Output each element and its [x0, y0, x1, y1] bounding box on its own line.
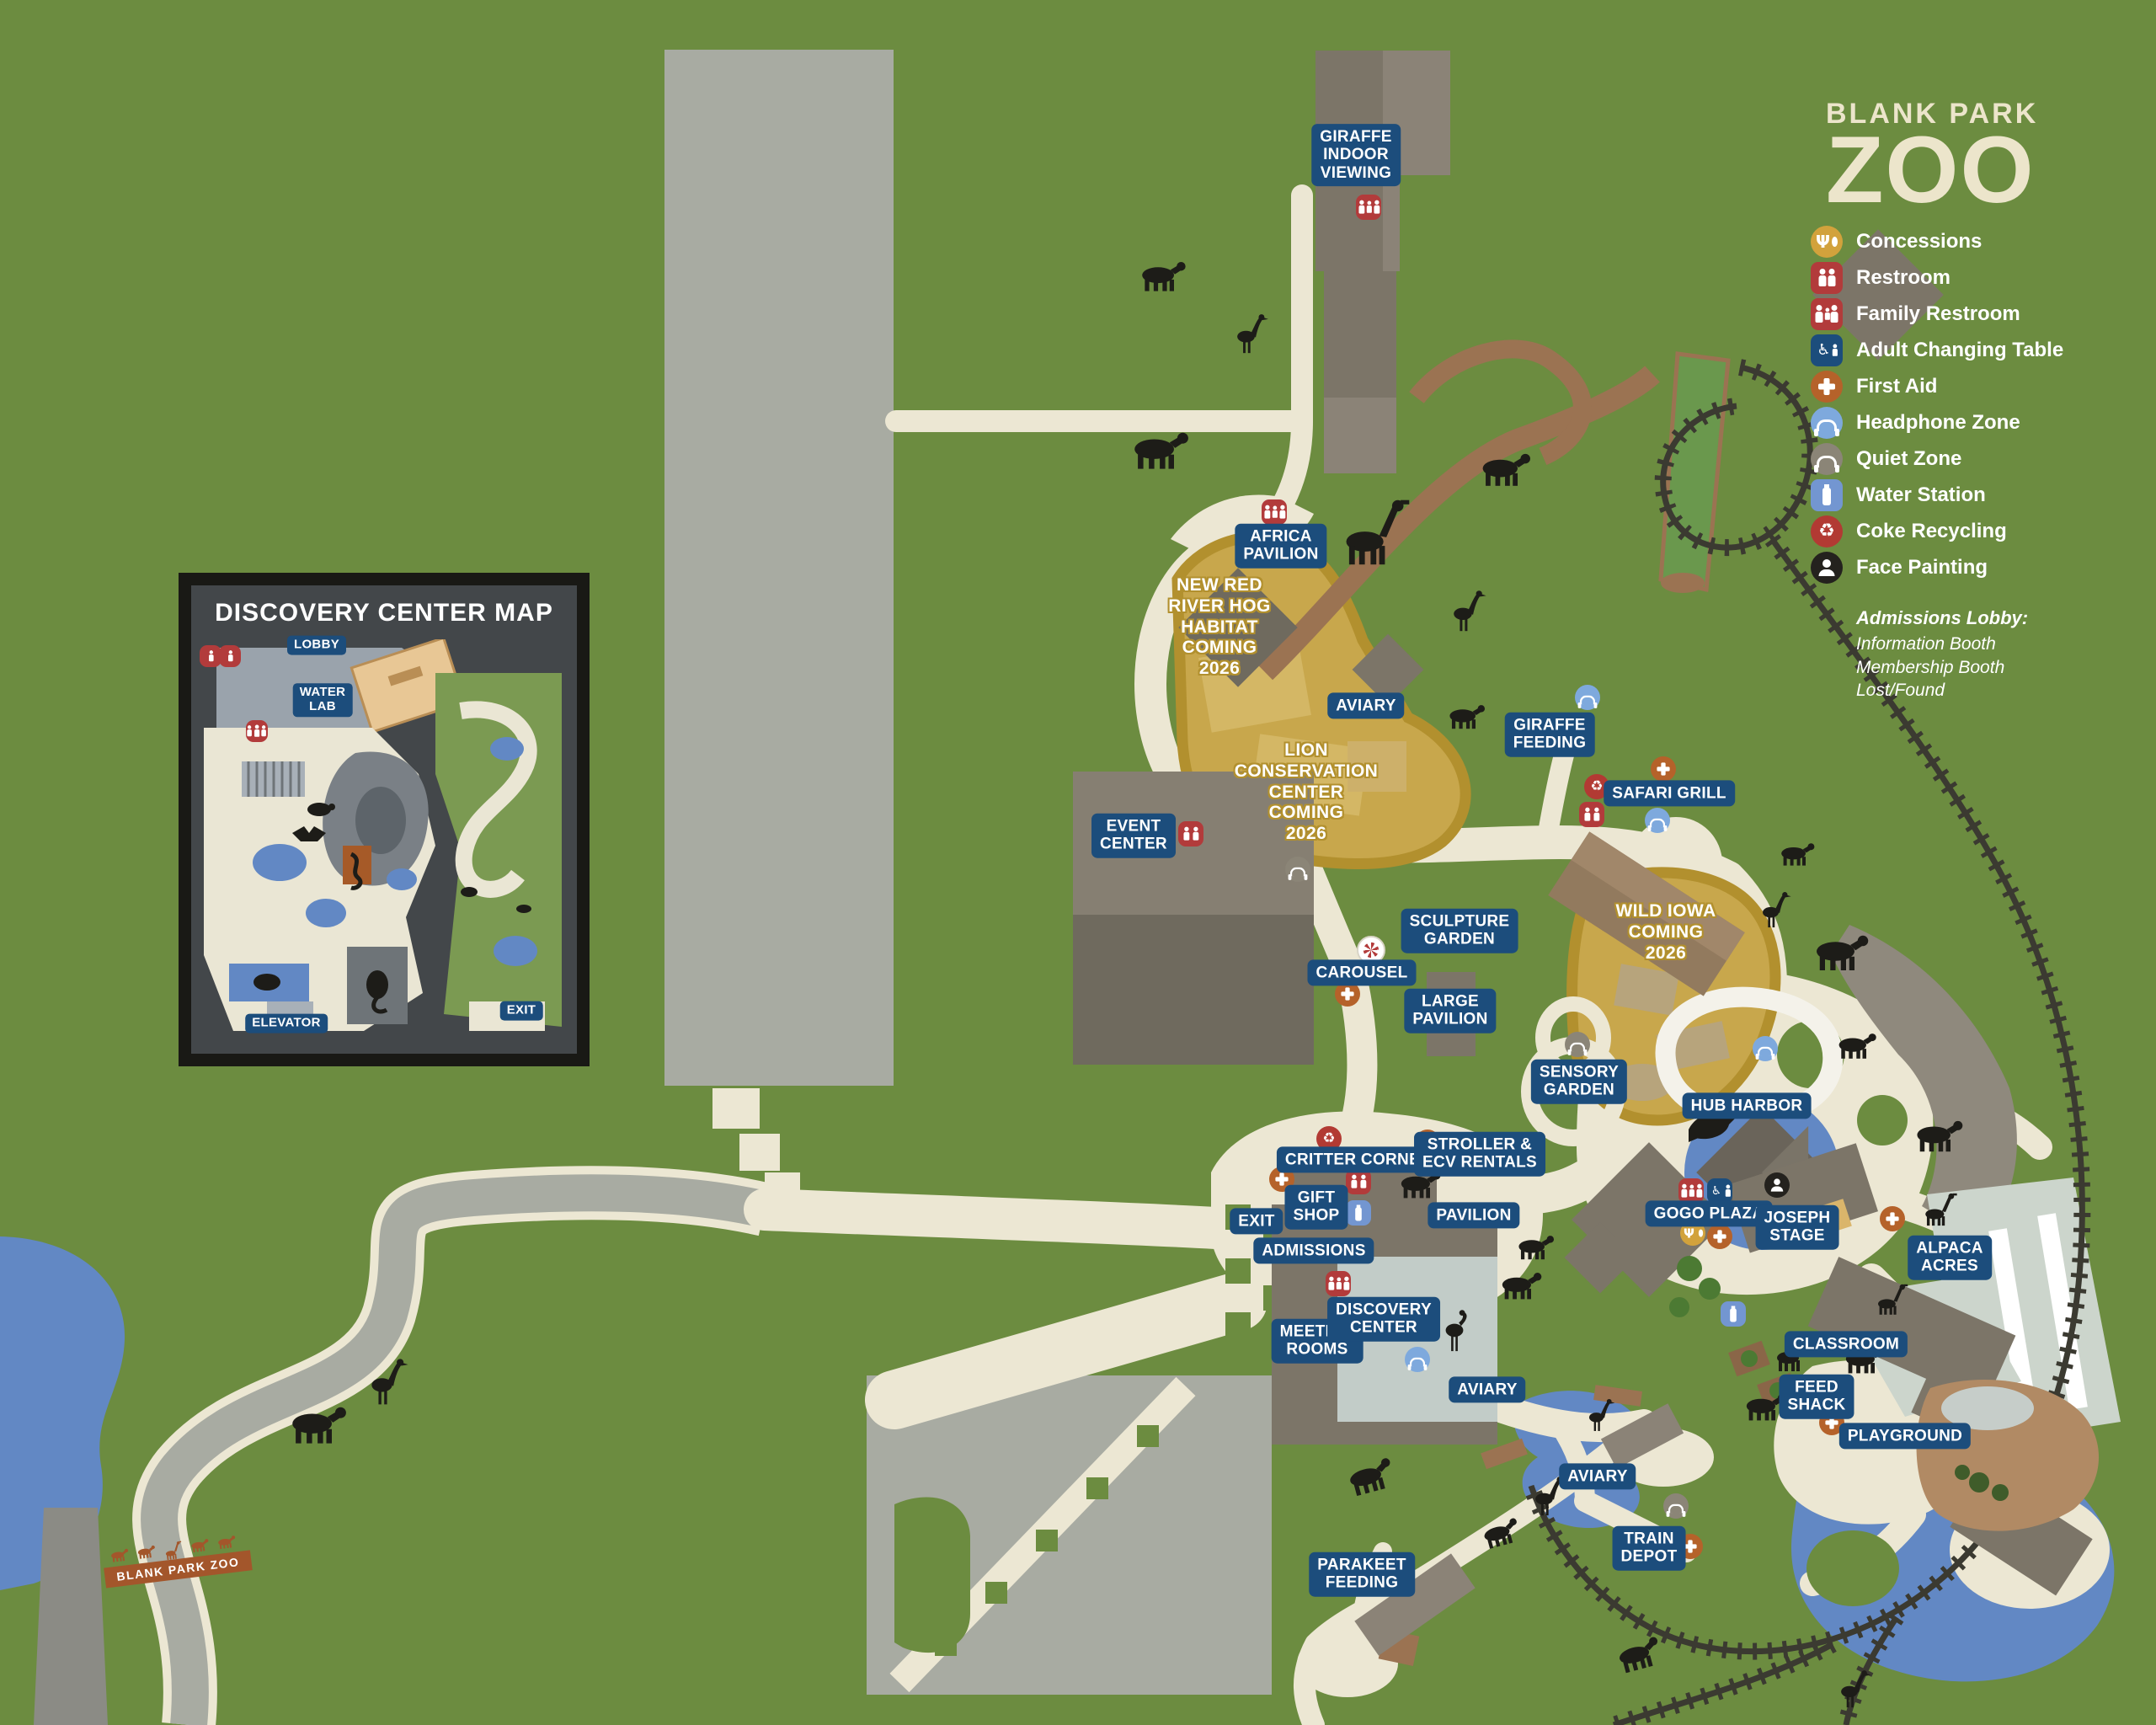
legend-item-headphone-zone: Headphone Zone	[1811, 407, 2148, 439]
label-sculpture-garden: SCULPTURE GARDEN	[1401, 909, 1518, 953]
inset-art	[191, 639, 577, 1049]
inset-label-exit: EXIT	[500, 1001, 543, 1021]
label-event-center: EVENT CENTER	[1091, 814, 1176, 858]
label-joseph-stage: JOSEPH STAGE	[1756, 1205, 1839, 1250]
restroom-icon	[1811, 262, 1843, 294]
label-giraffe-indoor-viewing: GIRAFFE INDOOR VIEWING	[1311, 124, 1401, 186]
label-large-pavilion: LARGE PAVILION	[1404, 989, 1496, 1033]
legend: ΨConcessionsRestroomFamily Restroom♿Adul…	[1811, 226, 2148, 702]
label-stroller-ecv-rentals: STROLLER & ECV RENTALS	[1414, 1132, 1545, 1177]
water-icon	[1811, 479, 1843, 511]
legend-label: Headphone Zone	[1856, 411, 2020, 435]
label-giraffe-feeding: GIRAFFE FEEDING	[1505, 713, 1595, 757]
note-line: Lost/Found	[1856, 679, 2148, 702]
facepaint-icon	[1764, 1172, 1790, 1198]
label-sensory-garden: SENSORY GARDEN	[1531, 1060, 1627, 1104]
concessions-icon: Ψ	[1811, 226, 1843, 258]
label-admissions: ADMISSIONS	[1253, 1237, 1374, 1263]
legend-item-restroom: Restroom	[1811, 262, 2148, 294]
label-exit: EXIT	[1230, 1208, 1283, 1234]
label-lion-conservation-center-coming-2026: LION CONSERVATION CENTER COMING 2026	[1235, 740, 1378, 845]
restroom-icon	[1346, 1169, 1371, 1194]
family-icon	[1326, 1271, 1351, 1296]
coke-icon: ♻	[1811, 515, 1843, 547]
legend-item-adult-changing-table: ♿Adult Changing Table	[1811, 334, 2148, 366]
family-icon	[1811, 298, 1843, 330]
legend-items: ΨConcessionsRestroomFamily Restroom♿Adul…	[1811, 226, 2148, 584]
headphone-icon	[1753, 1036, 1778, 1061]
restroom1-icon	[219, 645, 241, 667]
label-discovery-center: DISCOVERY CENTER	[1327, 1297, 1440, 1342]
note-line: Information Booth	[1856, 633, 2148, 656]
label-pavilion: PAVILION	[1428, 1202, 1519, 1228]
headphone-icon	[1811, 407, 1843, 439]
label-hub-harbor: HUB HARBOR	[1683, 1092, 1812, 1119]
label-gogo-plaza: GOGO PLAZA	[1646, 1200, 1773, 1226]
legend-label: Restroom	[1856, 266, 1951, 290]
label-safari-grill: SAFARI GRILL	[1604, 780, 1735, 806]
zoo-map: GIRAFFE INDOOR VIEWINGAFRICA PAVILIONAVI…	[0, 0, 2156, 1725]
label-train-depot: TRAIN DEPOT	[1613, 1526, 1686, 1571]
legend-label: First Aid	[1856, 375, 1937, 398]
quiet-icon	[1663, 1493, 1689, 1519]
note-title: Admissions Lobby:	[1856, 607, 2148, 629]
family-icon	[1356, 195, 1381, 220]
sign-pylon	[34, 1508, 108, 1725]
restroom-icon	[1579, 802, 1604, 827]
family-icon	[246, 720, 268, 742]
label-parakeet-feeding: PARAKEET FEEDING	[1309, 1552, 1415, 1597]
inset-label-water-lab: WATER LAB	[293, 683, 353, 717]
label-carousel: CAROUSEL	[1307, 959, 1416, 985]
legend-label: Coke Recycling	[1856, 520, 2007, 543]
legend-item-quiet-zone: Quiet Zone	[1811, 443, 2148, 475]
firstaid-icon	[1811, 371, 1843, 403]
label-playground: PLAYGROUND	[1839, 1423, 1971, 1449]
label-alpaca-acres: ALPACA ACRES	[1908, 1236, 1992, 1280]
quiet-icon	[1565, 1032, 1590, 1057]
quiet-icon	[1811, 443, 1843, 475]
admissions-lobby-note: Admissions Lobby: Information Booth Memb…	[1856, 607, 2148, 702]
legend-label: Face Painting	[1856, 556, 1988, 579]
label-aviary: AVIARY	[1327, 692, 1404, 718]
label-aviary: AVIARY	[1449, 1376, 1525, 1402]
legend-item-water-station: Water Station	[1811, 479, 2148, 511]
family-icon	[1262, 499, 1287, 525]
headphone-icon	[1575, 685, 1600, 710]
logo-line2: ZOO	[1826, 132, 2045, 208]
label-gift-shop: GIFT SHOP	[1284, 1185, 1347, 1230]
water-icon	[1721, 1301, 1746, 1327]
changing-icon: ♿	[1811, 334, 1843, 366]
legend-item-coke-recycling: ♻Coke Recycling	[1811, 515, 2148, 547]
legend-item-first-aid: First Aid	[1811, 371, 2148, 403]
label-classroom: CLASSROOM	[1785, 1331, 1908, 1357]
label-feed-shack: FEED SHACK	[1779, 1375, 1854, 1419]
firstaid-icon	[1651, 756, 1676, 782]
quiet-icon	[1285, 857, 1310, 882]
legend-item-face-painting: Face Painting	[1811, 552, 2148, 584]
restroom-icon	[1178, 821, 1203, 846]
label-africa-pavilion: AFRICA PAVILION	[1235, 524, 1326, 569]
legend-item-concessions: ΨConcessions	[1811, 226, 2148, 258]
water-icon	[1346, 1200, 1371, 1226]
facepaint-icon	[1811, 552, 1843, 584]
headphone-icon	[1405, 1347, 1430, 1372]
pond-island	[1806, 1530, 1899, 1606]
discovery-center-inset: DISCOVERY CENTER MAP	[179, 573, 590, 1066]
legend-label: Water Station	[1856, 483, 1986, 507]
legend-label: Quiet Zone	[1856, 447, 1961, 471]
legend-label: Concessions	[1856, 230, 1982, 254]
zoo-logo: BLANK PARK ZOO	[1826, 98, 2045, 208]
headphone-icon	[1645, 808, 1670, 833]
label-aviary: AVIARY	[1559, 1463, 1636, 1489]
legend-item-family-restroom: Family Restroom	[1811, 298, 2148, 330]
inset-label-elevator: ELEVATOR	[245, 1014, 328, 1033]
inset-label-lobby: LOBBY	[287, 636, 346, 655]
inset-title: DISCOVERY CENTER MAP	[191, 599, 577, 628]
firstaid-icon	[1880, 1206, 1905, 1231]
label-wild-iowa-coming-2026: WILD IOWA COMING 2026	[1615, 901, 1716, 964]
label-new-red-river-hog-habitat-coming-2026: NEW RED RIVER HOG HABITAT COMING 2026	[1168, 575, 1270, 680]
legend-label: Adult Changing Table	[1856, 339, 2063, 362]
note-line: Membership Booth	[1856, 656, 2148, 680]
firstaid-icon	[1707, 1224, 1732, 1249]
legend-label: Family Restroom	[1856, 302, 2020, 326]
